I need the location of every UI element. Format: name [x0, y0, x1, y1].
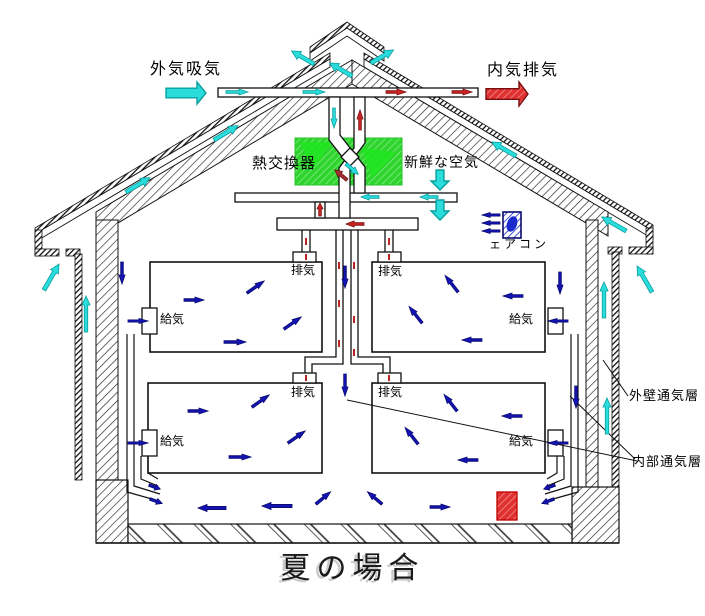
label-exhaust-upper-left: 排気	[291, 264, 315, 277]
airflow-arrows	[40, 46, 656, 511]
label-exhaust-upper-right: 排気	[378, 265, 402, 278]
red-unit-box	[497, 492, 517, 520]
eaves	[35, 228, 653, 256]
label-supply-lower-right: 給気	[509, 435, 533, 448]
inner-wall-right	[586, 220, 598, 487]
airflow-arrow-blue	[482, 229, 500, 234]
label-heat-exchanger: 熱交換器	[252, 155, 316, 172]
inner-wall-left	[96, 220, 118, 505]
label-inside-air-exhaust: 内気排気	[487, 61, 559, 79]
ridge-vent-cap	[310, 22, 384, 61]
label-outer-wall-vent-layer: 外壁通気層	[629, 390, 699, 404]
airflow-arrow-blue	[557, 272, 563, 294]
outer-wall-skin-left	[75, 254, 82, 480]
airflow-arrow-blue	[342, 374, 348, 396]
label-fresh-air: 新鮮な空気	[404, 156, 479, 171]
label-supply-upper-left: 給気	[160, 313, 184, 326]
label-exhaust-lower-right: 排気	[378, 386, 402, 399]
diagram-title: 夏の場合	[0, 543, 705, 587]
airflow-arrow-blue	[482, 221, 500, 226]
rooms	[148, 262, 545, 473]
airflow-arrow-blue	[543, 482, 556, 492]
airflow-arrow-cyan	[40, 262, 63, 292]
airflow-arrow-blue	[541, 496, 555, 506]
airflow-arrow-blue	[198, 505, 226, 512]
label-inner-vent-layer: 内部通気層	[632, 456, 702, 470]
leader-inner-vent-layer-short	[570, 396, 635, 459]
airflow-arrow-blue	[149, 496, 163, 506]
airflow-arrow-red	[486, 82, 528, 106]
house-cross-section	[0, 0, 705, 616]
label-outside-air-intake: 外気吸気	[150, 60, 222, 78]
airflow-arrow-cyan	[600, 282, 608, 318]
label-exhaust-lower-left: 排気	[291, 386, 315, 399]
exhaust-vent-lower-left	[293, 373, 316, 383]
label-supply-upper-right: 給気	[509, 313, 533, 326]
airflow-arrow-blue	[314, 489, 332, 506]
airflow-arrow-blue	[366, 489, 384, 506]
label-air-conditioner: ェアコン	[489, 238, 549, 251]
ventilation-diagram: 外気吸気 内気排気 熱交換器 新鮮な空気 ェアコン 排気 排気 排気 排気 給気…	[0, 0, 705, 616]
airflow-arrow-blue	[119, 262, 125, 284]
airflow-arrow-blue	[430, 504, 450, 510]
airflow-arrow-blue	[262, 503, 292, 510]
airflow-arrow-cyan	[633, 264, 656, 294]
label-supply-lower-left: 給気	[160, 435, 184, 448]
airflow-arrow-cyan	[82, 296, 90, 332]
attic-main-duct	[218, 88, 478, 97]
airflow-arrow-cyan	[431, 170, 449, 190]
foundation	[96, 480, 619, 543]
exhaust-vent-upper-left	[293, 252, 316, 262]
airflow-arrow-cyan	[166, 82, 206, 104]
ac-unit	[503, 212, 521, 238]
airflow-arrow-cyan	[431, 200, 449, 220]
airflow-arrow-blue	[482, 213, 500, 218]
